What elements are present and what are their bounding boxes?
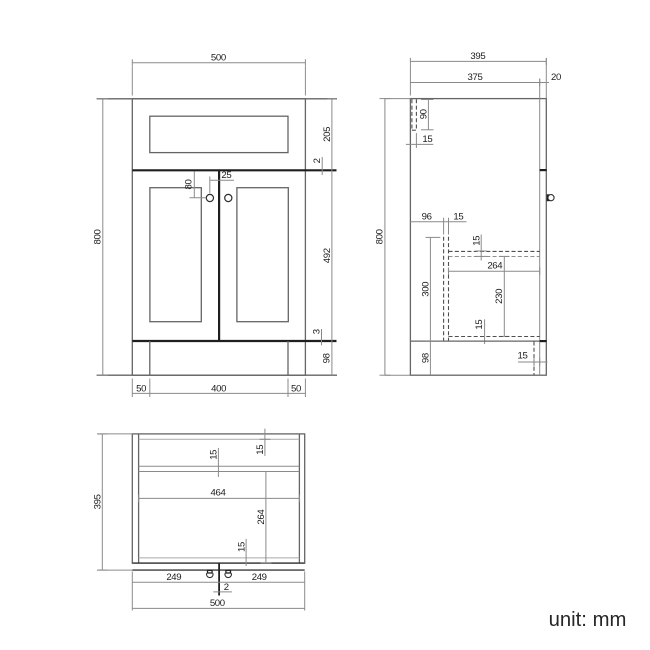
svg-text:500: 500: [210, 598, 225, 609]
svg-text:15: 15: [209, 450, 220, 460]
svg-text:464: 464: [211, 488, 227, 499]
svg-text:15: 15: [474, 320, 485, 330]
svg-text:96: 96: [422, 212, 432, 223]
svg-text:50: 50: [291, 384, 301, 395]
svg-text:15: 15: [471, 236, 482, 246]
svg-text:500: 500: [211, 52, 226, 63]
svg-text:375: 375: [468, 72, 483, 83]
svg-text:25: 25: [221, 170, 231, 181]
svg-text:492: 492: [322, 248, 333, 263]
svg-text:15: 15: [255, 445, 266, 455]
svg-text:395: 395: [92, 494, 103, 509]
svg-text:20: 20: [551, 72, 561, 83]
svg-text:249: 249: [166, 572, 181, 583]
svg-text:264: 264: [256, 509, 267, 525]
svg-text:205: 205: [322, 127, 333, 142]
svg-text:90: 90: [418, 109, 429, 119]
svg-text:230: 230: [494, 289, 505, 304]
svg-text:15: 15: [453, 212, 463, 223]
svg-text:2: 2: [224, 582, 229, 593]
svg-text:80: 80: [184, 180, 195, 190]
svg-text:3: 3: [312, 329, 323, 334]
svg-text:264: 264: [487, 261, 503, 272]
svg-text:unit: mm: unit: mm: [549, 609, 627, 631]
svg-text:800: 800: [374, 229, 385, 244]
svg-text:400: 400: [211, 384, 226, 395]
svg-text:800: 800: [93, 230, 104, 245]
svg-text:98: 98: [420, 353, 431, 363]
svg-text:300: 300: [420, 282, 431, 297]
svg-text:15: 15: [422, 134, 432, 145]
svg-text:2: 2: [312, 158, 323, 163]
svg-text:395: 395: [470, 51, 485, 62]
svg-text:15: 15: [518, 351, 528, 362]
svg-text:50: 50: [136, 384, 146, 395]
svg-text:249: 249: [252, 572, 267, 583]
svg-text:15: 15: [237, 542, 248, 552]
svg-text:98: 98: [322, 353, 333, 363]
